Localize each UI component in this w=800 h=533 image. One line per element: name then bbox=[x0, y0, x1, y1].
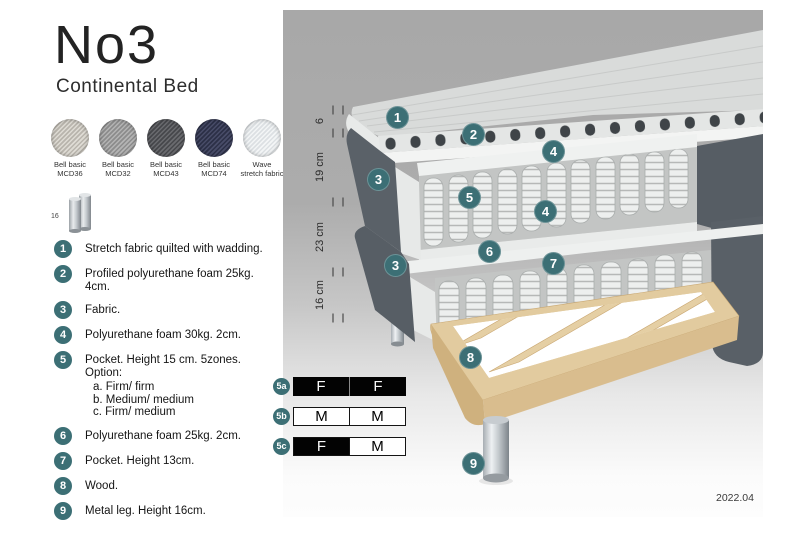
metal-leg-icon: 16 bbox=[48, 190, 106, 243]
swatch-label-line2: MCD36 bbox=[54, 169, 86, 178]
callout-badge-3a: 3 bbox=[367, 168, 390, 191]
firmness-cell: M bbox=[350, 408, 405, 425]
firmness-cell: M bbox=[294, 408, 350, 425]
part-badge: 5 bbox=[54, 351, 72, 369]
fabric-swatch-icon bbox=[195, 119, 233, 157]
info-column: No3 Continental Bed Bell basic MCD36 Bel… bbox=[0, 0, 283, 533]
part-text: Profiled polyurethane foam 25kg. 4cm. bbox=[85, 265, 279, 294]
part-options: a. Firm/ firm b. Medium/ medium c. Firm/… bbox=[93, 382, 279, 419]
page-subtitle: Continental Bed bbox=[56, 76, 199, 98]
part-badge: 8 bbox=[54, 477, 72, 495]
part-text: Stretch fabric quilted with wadding. bbox=[85, 240, 263, 256]
option-b: b. Medium/ medium bbox=[93, 395, 279, 407]
firmness-cell: F bbox=[350, 377, 406, 396]
part-item-5: 5 Pocket. Height 15 cm. 5zones. Option: … bbox=[54, 351, 279, 420]
callout-badge-3b: 3 bbox=[384, 254, 407, 277]
part-text: Metal leg. Height 16cm. bbox=[85, 502, 206, 518]
callout-badge-4b: 4 bbox=[534, 200, 557, 223]
part-text: Fabric. bbox=[85, 301, 120, 317]
firmness-badge-5c: 5c bbox=[273, 438, 290, 455]
date-stamp: 2022.04 bbox=[716, 492, 754, 504]
option-c: c. Firm/ medium bbox=[93, 407, 279, 419]
part-badge: 6 bbox=[54, 427, 72, 445]
swatch-label-line1: Wave bbox=[241, 160, 284, 169]
option-a: a. Firm/ firm bbox=[93, 382, 279, 394]
part-badge: 9 bbox=[54, 502, 72, 520]
firmness-row-5c: 5c F M bbox=[273, 437, 406, 456]
part-item-7: 7 Pocket. Height 13cm. bbox=[54, 452, 279, 470]
callout-badge-2: 2 bbox=[462, 123, 485, 146]
firmness-cell: F bbox=[293, 377, 350, 396]
fabric-swatch-mcd74: Bell basic MCD74 bbox=[192, 119, 236, 178]
fabric-swatch-wave: Wave stretch fabric bbox=[240, 119, 284, 178]
callout-badge-7: 7 bbox=[542, 252, 565, 275]
fabric-swatch-mcd43: Bell basic MCD43 bbox=[144, 119, 188, 178]
part-badge: 1 bbox=[54, 240, 72, 258]
dimension-label-upper: 19 cm bbox=[314, 152, 326, 182]
part-item-1: 1 Stretch fabric quilted with wadding. bbox=[54, 240, 279, 258]
firmness-cell: F bbox=[294, 438, 350, 455]
part-item-9: 9 Metal leg. Height 16cm. bbox=[54, 502, 279, 520]
metal-leg-front bbox=[479, 416, 513, 485]
swatch-label-line2: MCD74 bbox=[198, 169, 230, 178]
callout-badge-9: 9 bbox=[462, 452, 485, 475]
swatch-label-line2: MCD32 bbox=[102, 169, 134, 178]
swatch-label-line1: Bell basic bbox=[102, 160, 134, 169]
firmness-badge-5a: 5a bbox=[273, 378, 290, 395]
firmness-cell: M bbox=[350, 438, 405, 455]
part-item-3: 3 Fabric. bbox=[54, 301, 279, 319]
swatch-label-line2: stretch fabric bbox=[241, 169, 284, 178]
part-badge: 3 bbox=[54, 301, 72, 319]
fabric-swatch-icon bbox=[243, 119, 281, 157]
firmness-badge-5b: 5b bbox=[273, 408, 290, 425]
part-badge: 7 bbox=[54, 452, 72, 470]
part-item-8: 8 Wood. bbox=[54, 477, 279, 495]
dimension-label-lower: 23 cm bbox=[314, 222, 326, 252]
part-text: Pocket. Height 15 cm. 5zones. Option: bbox=[85, 351, 279, 380]
callout-badge-5: 5 bbox=[458, 186, 481, 209]
leg-height-label: 16 bbox=[51, 213, 59, 220]
fabric-swatch-row: Bell basic MCD36 Bell basic MCD32 Bell b… bbox=[48, 119, 284, 178]
fabric-swatch-mcd32: Bell basic MCD32 bbox=[96, 119, 140, 178]
callout-badge-4a: 4 bbox=[542, 140, 565, 163]
part-text: Wood. bbox=[85, 477, 118, 493]
fabric-swatch-icon bbox=[99, 119, 137, 157]
part-item-4: 4 Polyurethane foam 30kg. 2cm. bbox=[54, 326, 279, 344]
part-badge: 2 bbox=[54, 265, 72, 283]
dimension-ruler bbox=[333, 106, 343, 323]
part-item-6: 6 Polyurethane foam 25kg. 2cm. bbox=[54, 427, 279, 445]
firmness-row-5a: 5a F F bbox=[273, 377, 406, 396]
dimension-label-leg: 16 cm bbox=[314, 280, 326, 310]
parts-list: 1 Stretch fabric quilted with wadding. 2… bbox=[54, 240, 279, 527]
part-text: Polyurethane foam 25kg. 2cm. bbox=[85, 427, 241, 443]
fabric-swatch-icon bbox=[147, 119, 185, 157]
part-badge: 4 bbox=[54, 326, 72, 344]
part-text: Pocket. Height 13cm. bbox=[85, 452, 194, 468]
swatch-label-line1: Bell basic bbox=[54, 160, 86, 169]
callout-badge-6: 6 bbox=[478, 240, 501, 263]
swatch-label-line1: Bell basic bbox=[150, 160, 182, 169]
leg-cylinder-front bbox=[69, 199, 81, 231]
callout-badge-8: 8 bbox=[459, 346, 482, 369]
part-item-2: 2 Profiled polyurethane foam 25kg. 4cm. bbox=[54, 265, 279, 294]
firmness-row-5b: 5b M M bbox=[273, 407, 406, 426]
callout-badge-1: 1 bbox=[386, 106, 409, 129]
swatch-label-line1: Bell basic bbox=[198, 160, 230, 169]
fabric-swatch-mcd36: Bell basic MCD36 bbox=[48, 119, 92, 178]
page-title: No3 bbox=[54, 18, 159, 72]
swatch-label-line2: MCD43 bbox=[150, 169, 182, 178]
part-text: Polyurethane foam 30kg. 2cm. bbox=[85, 326, 241, 342]
fabric-swatch-icon bbox=[51, 119, 89, 157]
dimension-label-topper: 6 bbox=[314, 118, 326, 124]
